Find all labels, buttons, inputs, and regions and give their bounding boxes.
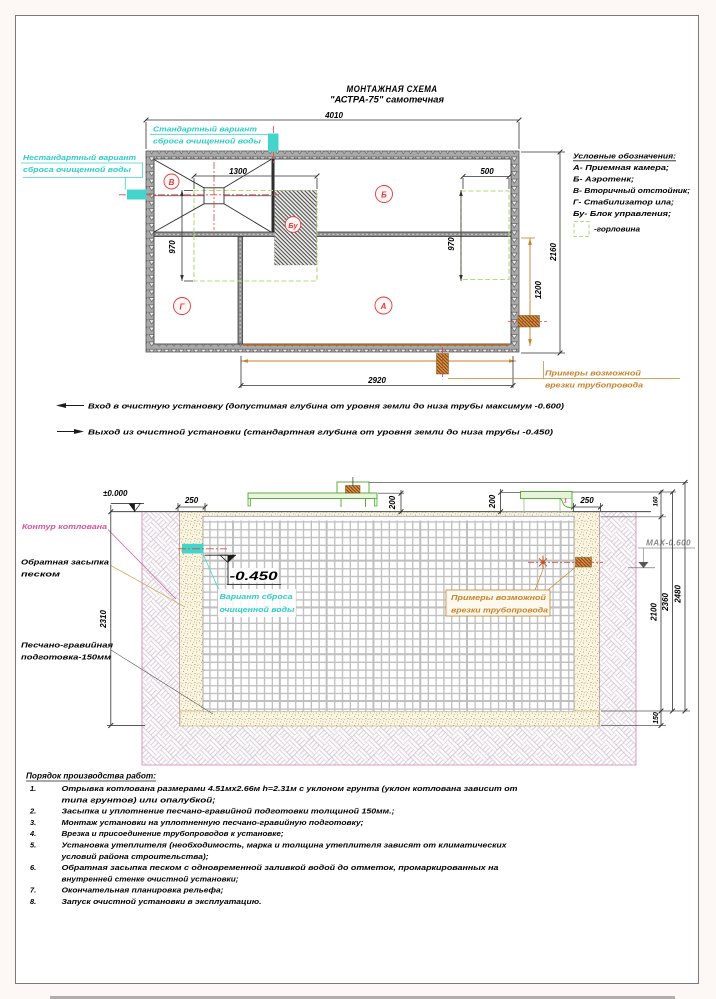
svg-text:Порядок производства работ:: Порядок производства работ: bbox=[26, 772, 156, 781]
svg-text:-горловина: -горловина bbox=[594, 225, 640, 234]
svg-text:Установка утеплителя (необходи: Установка утеплителя (необходимость, мар… bbox=[62, 841, 508, 850]
svg-text:500: 500 bbox=[480, 167, 494, 176]
svg-text:2160: 2160 bbox=[549, 243, 558, 262]
svg-text:250: 250 bbox=[579, 496, 594, 505]
svg-text:Г- Стабилизатор ила;: Г- Стабилизатор ила; bbox=[573, 198, 675, 207]
svg-text:1.: 1. bbox=[30, 784, 36, 793]
svg-text:250: 250 bbox=[184, 496, 199, 505]
svg-text:условий района строительства);: условий района строительства); bbox=[60, 852, 209, 861]
svg-text:Б: Б bbox=[381, 190, 387, 199]
svg-text:4.: 4. bbox=[29, 829, 36, 838]
svg-text:Стандартный вариант: Стандартный вариант bbox=[153, 125, 257, 134]
svg-text:Запуск очистной установки в эк: Запуск очистной установки в эксплуатацию… bbox=[62, 897, 262, 906]
svg-text:врезки трубопровода: врезки трубопровода bbox=[545, 381, 643, 390]
svg-text:7.: 7. bbox=[30, 886, 36, 895]
svg-text:А- Приемная камера;: А- Приемная камера; bbox=[572, 163, 670, 172]
svg-text:врезки трубопровода: врезки трубопровода bbox=[451, 606, 548, 615]
svg-text:Выход из очистной установки (с: Выход из очистной установки (стандартная… bbox=[88, 428, 554, 437]
svg-text:Вход в очистную установку (доп: Вход в очистную установку (допустимая гл… bbox=[88, 402, 565, 411]
svg-text:типа грунтов) или опалубкой;: типа грунтов) или опалубкой; bbox=[62, 795, 217, 804]
svg-text:200: 200 bbox=[488, 494, 497, 509]
svg-text:Врезка и присоединение трубопр: Врезка и присоединение трубопроводов к у… bbox=[62, 829, 285, 838]
svg-text:Вариант сброса: Вариант сброса bbox=[220, 592, 293, 601]
svg-text:Окончательная планировка релье: Окончательная планировка рельефа; bbox=[62, 886, 225, 895]
svg-text:2360: 2360 bbox=[661, 593, 670, 612]
svg-text:Песчано-гравийная: Песчано-гравийная bbox=[21, 641, 114, 650]
svg-text:±0.000: ±0.000 bbox=[103, 489, 128, 498]
svg-text:Нестандартный вариант: Нестандартный вариант bbox=[23, 153, 136, 162]
svg-text:4010: 4010 bbox=[324, 111, 343, 120]
svg-text:160: 160 bbox=[654, 496, 660, 507]
svg-text:Обратная засыпка: Обратная засыпка bbox=[21, 558, 109, 567]
svg-text:200: 200 bbox=[388, 495, 397, 510]
svg-text:сброса очищенной воды: сброса очищенной воды bbox=[153, 137, 262, 146]
svg-text:1200: 1200 bbox=[534, 281, 543, 299]
svg-text:2310: 2310 bbox=[99, 610, 108, 629]
svg-text:Бу: Бу bbox=[288, 221, 298, 230]
svg-text:Засыпка и уплотнение песчано-г: Засыпка и уплотнение песчано-гравийной п… bbox=[62, 807, 396, 816]
svg-text:970: 970 bbox=[168, 240, 177, 254]
svg-text:2920: 2920 bbox=[367, 376, 386, 385]
svg-text:Отрывка котлована размерами 4.: Отрывка котлована размерами 4.51мх2.66м … bbox=[62, 784, 519, 793]
svg-text:внутренней стенке очистной уст: внутренней стенке очистной установки; bbox=[62, 874, 240, 883]
svg-text:сброса очищенной воды: сброса очищенной воды bbox=[23, 165, 132, 174]
svg-text:В- Вторичный отстойник;: В- Вторичный отстойник; bbox=[573, 186, 691, 195]
svg-text:МАХ-0.600: МАХ-0.600 bbox=[646, 539, 691, 548]
svg-text:-0.450: -0.450 bbox=[230, 571, 279, 583]
svg-text:970: 970 bbox=[447, 237, 456, 251]
svg-text:8.: 8. bbox=[30, 897, 36, 906]
svg-text:Примеры возможной: Примеры возможной bbox=[451, 593, 547, 602]
svg-text:песком: песком bbox=[21, 570, 61, 579]
svg-text:В: В bbox=[169, 178, 175, 187]
svg-text:Обратная засыпка песком с одно: Обратная засыпка песком с одновременной … bbox=[62, 863, 499, 872]
svg-text:5.: 5. bbox=[30, 841, 36, 850]
svg-text:3.: 3. bbox=[30, 818, 36, 827]
svg-text:очищенной воды: очищенной воды bbox=[220, 605, 296, 614]
svg-text:Монтаж установки на уплотненну: Монтаж установки на уплотненную песчано-… bbox=[62, 818, 365, 827]
svg-text:подготовка-150мм: подготовка-150мм bbox=[21, 653, 112, 662]
svg-text:6.: 6. bbox=[30, 863, 36, 872]
svg-text:2100: 2100 bbox=[650, 603, 659, 622]
svg-text:А: А bbox=[380, 302, 387, 311]
svg-text:1300: 1300 bbox=[229, 167, 247, 176]
svg-text:"АСТРА-75" самотечная: "АСТРА-75" самотечная bbox=[330, 95, 445, 105]
svg-text:Контур котлована: Контур котлована bbox=[22, 522, 107, 531]
svg-text:Условные обозначения:: Условные обозначения: bbox=[573, 152, 677, 161]
svg-text:Бу- Блок управления;: Бу- Блок управления; bbox=[573, 209, 672, 218]
svg-text:2.: 2. bbox=[29, 807, 36, 816]
svg-text:150: 150 bbox=[653, 712, 660, 724]
svg-text:1: 1 bbox=[564, 499, 567, 505]
svg-text:Б- Аэротенк;: Б- Аэротенк; bbox=[573, 175, 635, 184]
svg-text:МОНТАЖНАЯ СХЕМА: МОНТАЖНАЯ СХЕМА bbox=[347, 84, 438, 95]
svg-text:2480: 2480 bbox=[674, 585, 683, 604]
svg-text:Примеры возможной: Примеры возможной bbox=[545, 369, 642, 378]
